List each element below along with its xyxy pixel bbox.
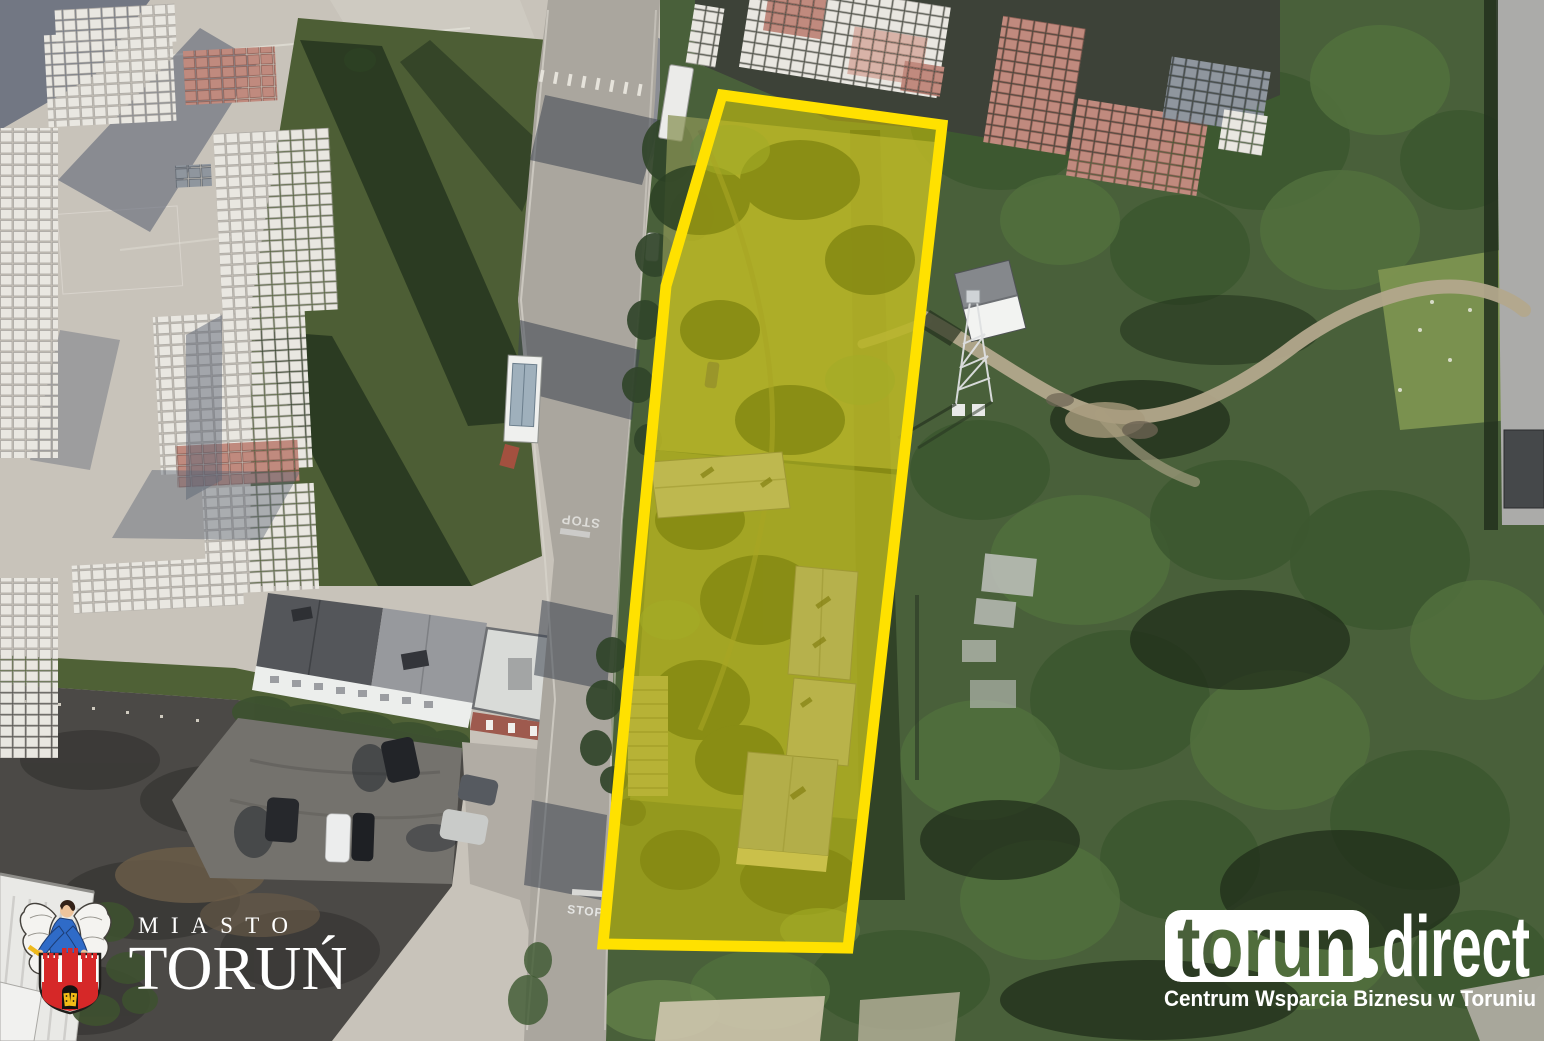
brand-dot xyxy=(1358,958,1378,978)
direct-logo: direct Centrum Wsparcia Biznesu w Toruni… xyxy=(1164,899,1536,1011)
shed-roof xyxy=(1504,430,1544,508)
car xyxy=(351,813,375,862)
aerial-photo-composite: torun xyxy=(0,0,1544,1041)
brand-box xyxy=(1165,910,1369,982)
brand-tagline: Centrum Wsparcia Biznesu w Toruniu xyxy=(1164,986,1536,1011)
brand-direct: direct xyxy=(1382,899,1530,995)
car xyxy=(265,797,300,843)
car xyxy=(325,814,351,863)
fence-line xyxy=(915,595,919,780)
city-logo-line2: TORUŃ xyxy=(129,935,348,1003)
sand-patch xyxy=(655,996,825,1041)
